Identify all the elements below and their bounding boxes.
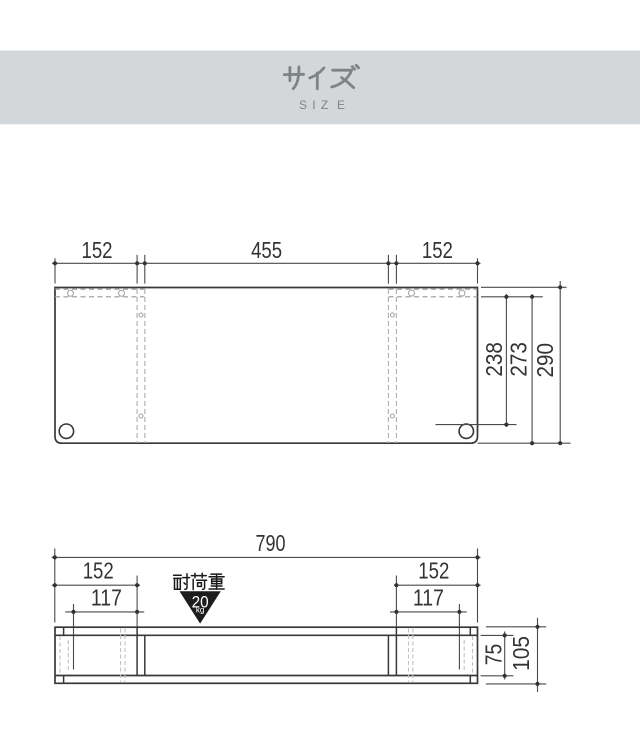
svg-text:117: 117 (413, 585, 444, 611)
svg-text:117: 117 (91, 585, 122, 611)
svg-text:105: 105 (508, 636, 534, 671)
svg-text:455: 455 (251, 237, 282, 263)
svg-text:SIZE: SIZE (299, 98, 345, 112)
svg-text:273: 273 (506, 342, 532, 377)
svg-text:kg: kg (196, 605, 205, 614)
svg-text:790: 790 (256, 530, 286, 556)
svg-text:152: 152 (83, 558, 114, 584)
svg-text:290: 290 (532, 343, 558, 378)
svg-text:152: 152 (82, 237, 113, 263)
svg-text:238: 238 (481, 342, 507, 377)
svg-text:152: 152 (422, 237, 453, 263)
svg-text:152: 152 (418, 558, 449, 584)
svg-text:75: 75 (481, 644, 507, 666)
